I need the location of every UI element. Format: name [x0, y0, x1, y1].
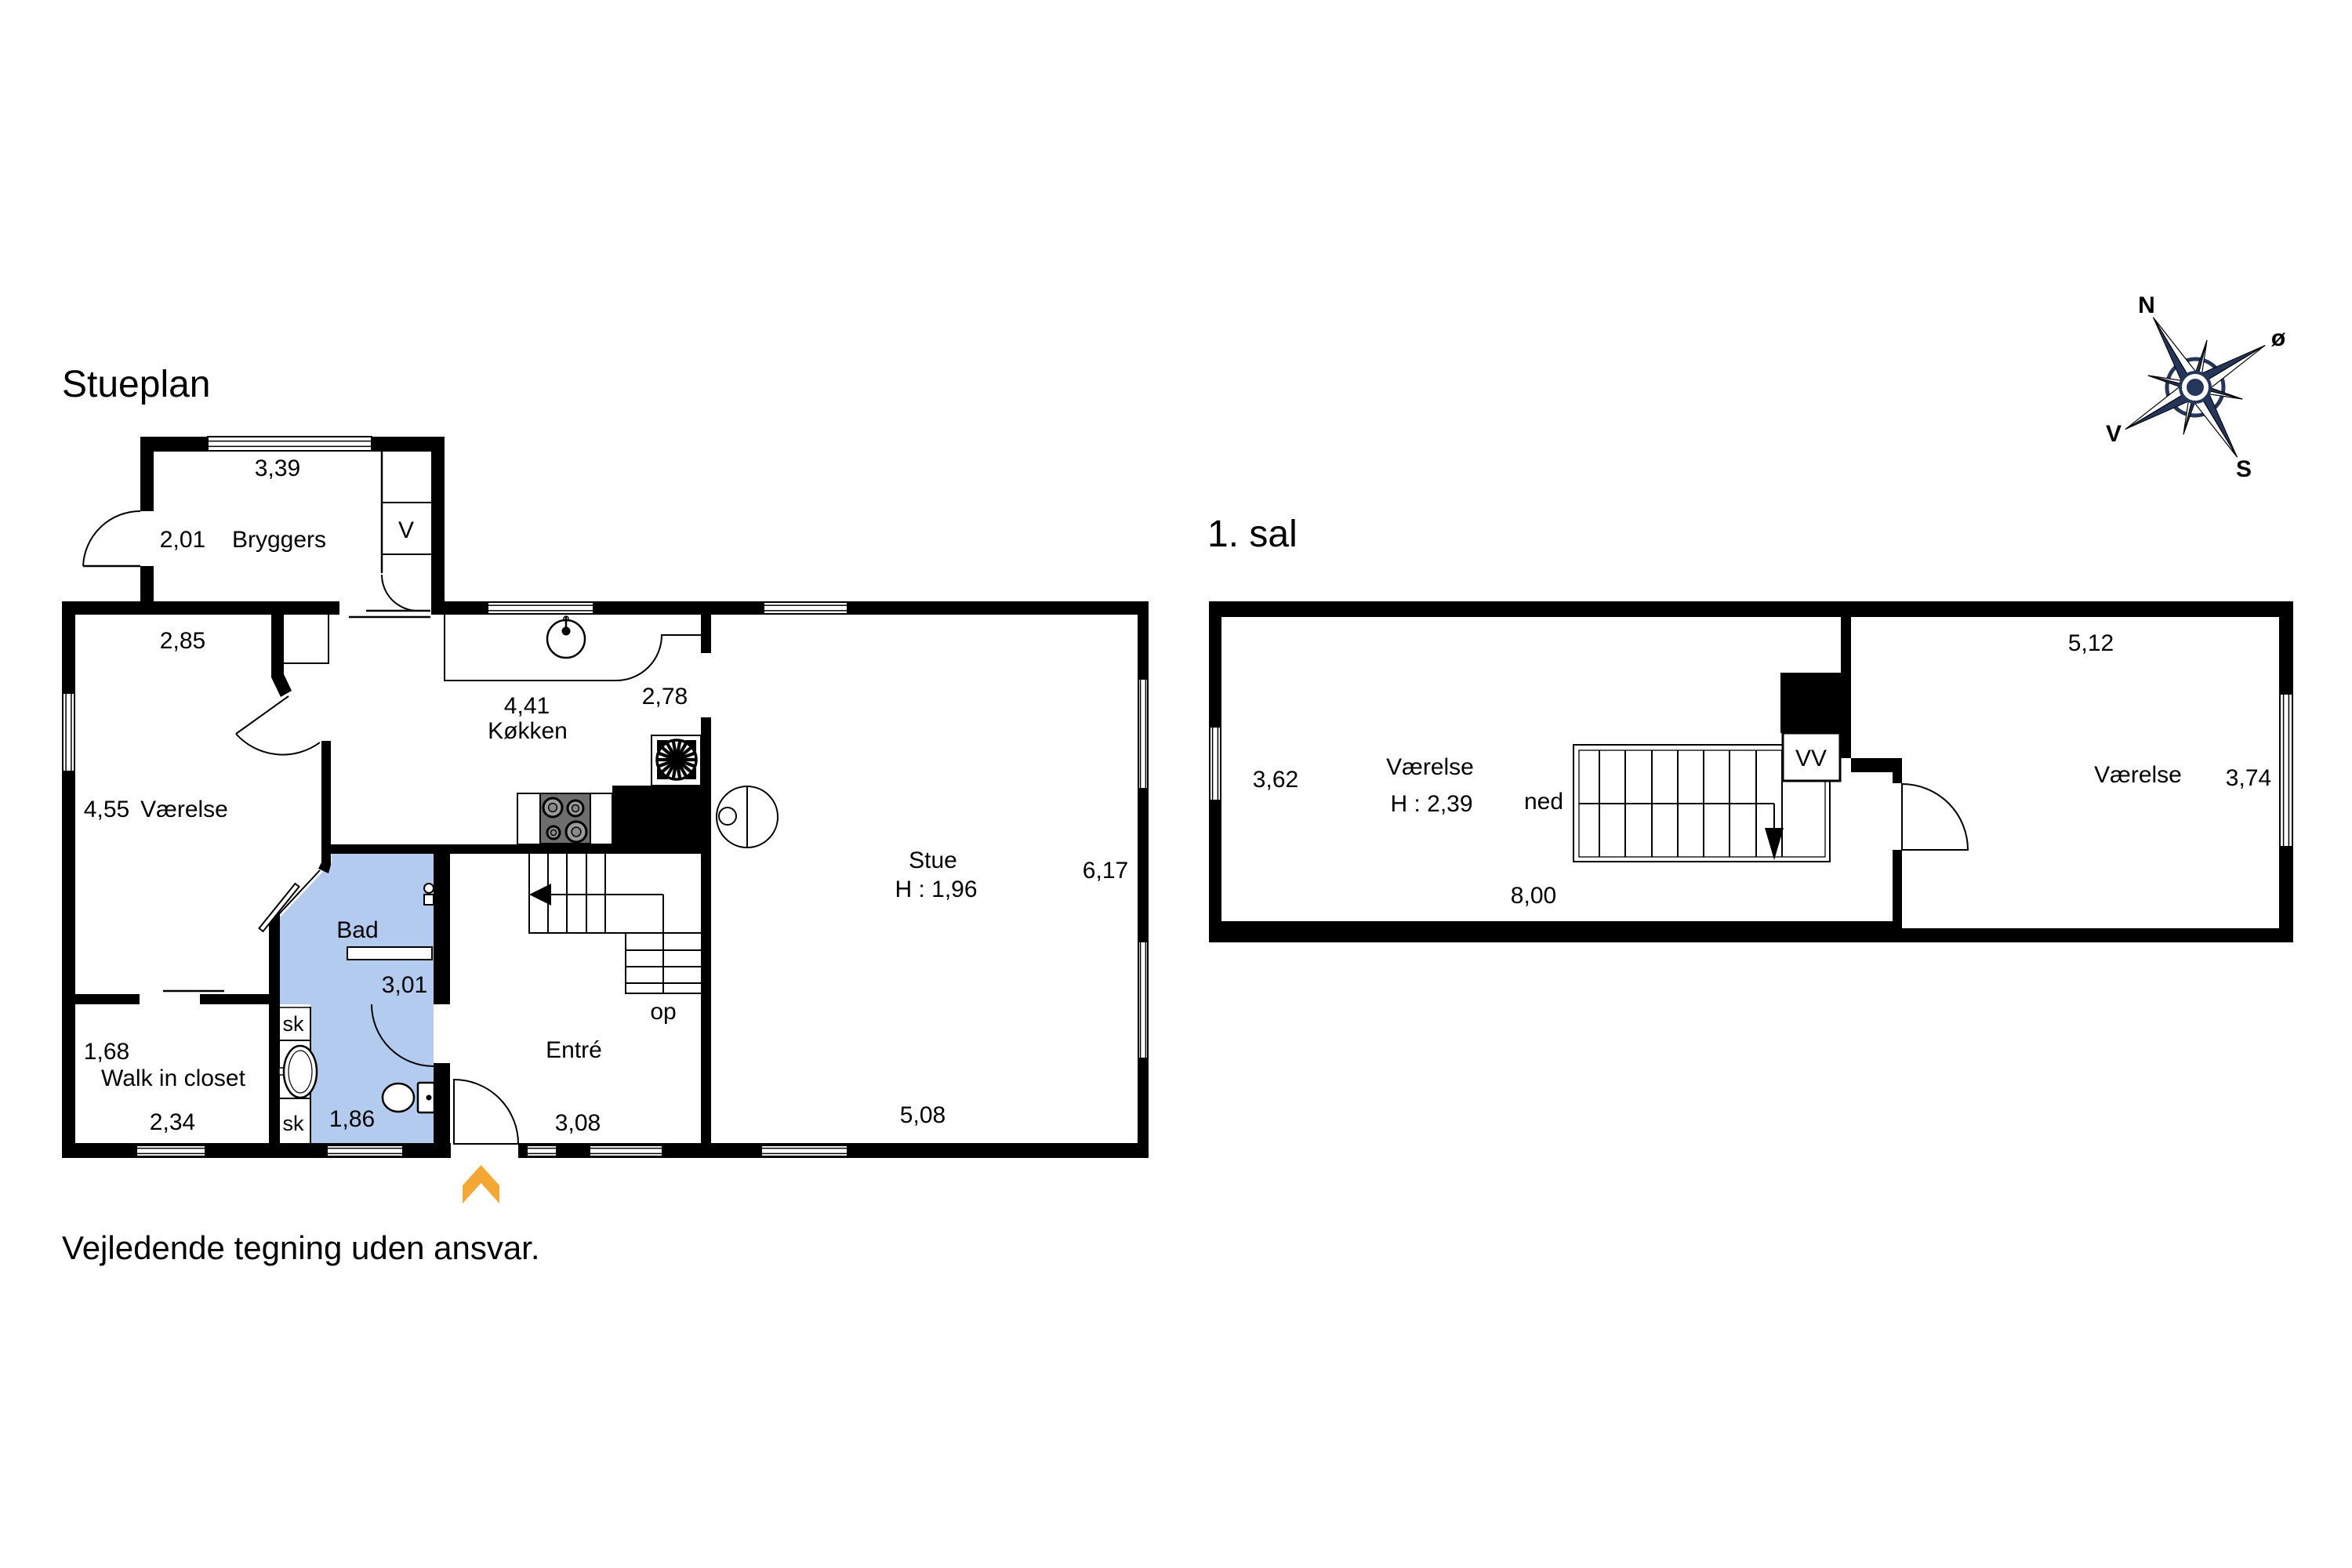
- svg-text:3,74: 3,74: [2226, 765, 2271, 791]
- svg-text:2,78: 2,78: [642, 684, 688, 710]
- svg-text:1,86: 1,86: [329, 1106, 375, 1132]
- svg-text:Vejledende tegning uden ansvar: Vejledende tegning uden ansvar.: [62, 1229, 540, 1266]
- svg-text:5,08: 5,08: [900, 1102, 946, 1128]
- svg-text:S: S: [2236, 456, 2252, 482]
- svg-text:Værelse: Værelse: [140, 797, 228, 822]
- svg-text:Bryggers: Bryggers: [232, 527, 326, 553]
- svg-text:Walk in closet: Walk in closet: [101, 1065, 246, 1091]
- svg-text:6,17: 6,17: [1083, 858, 1128, 884]
- svg-text:4,55: 4,55: [84, 797, 129, 822]
- svg-text:2,01: 2,01: [160, 527, 205, 553]
- svg-text:4,41: 4,41: [504, 693, 550, 719]
- svg-text:3,39: 3,39: [255, 456, 300, 481]
- svg-text:H : 2,39: H : 2,39: [1390, 791, 1472, 817]
- svg-text:H : 1,96: H : 1,96: [895, 877, 977, 902]
- svg-text:Værelse: Værelse: [1386, 754, 1474, 780]
- svg-text:VV: VV: [1795, 746, 1827, 771]
- svg-text:3,08: 3,08: [555, 1110, 601, 1136]
- svg-text:Entré: Entré: [546, 1037, 602, 1063]
- svg-text:N: N: [2138, 292, 2155, 318]
- svg-text:1. sal: 1. sal: [1207, 514, 1298, 555]
- svg-text:ø: ø: [2271, 325, 2286, 351]
- svg-text:2,85: 2,85: [160, 628, 205, 654]
- svg-text:Stue: Stue: [909, 848, 957, 873]
- svg-text:Bad: Bad: [336, 917, 378, 943]
- svg-text:Køkken: Køkken: [488, 718, 568, 744]
- svg-text:op: op: [650, 999, 676, 1025]
- svg-text:3,01: 3,01: [382, 972, 427, 998]
- svg-text:1,68: 1,68: [84, 1039, 129, 1065]
- svg-text:V: V: [398, 517, 414, 543]
- svg-text:Værelse: Værelse: [2094, 762, 2182, 788]
- svg-text:3,62: 3,62: [1253, 767, 1298, 793]
- svg-text:8,00: 8,00: [1511, 883, 1556, 909]
- svg-text:V: V: [2106, 421, 2122, 447]
- svg-text:ned: ned: [1524, 789, 1563, 815]
- svg-text:sk: sk: [283, 1012, 305, 1036]
- svg-text:5,12: 5,12: [2068, 630, 2114, 656]
- svg-text:Stueplan: Stueplan: [62, 364, 211, 405]
- svg-text:sk: sk: [283, 1112, 305, 1135]
- svg-text:2,34: 2,34: [150, 1109, 195, 1135]
